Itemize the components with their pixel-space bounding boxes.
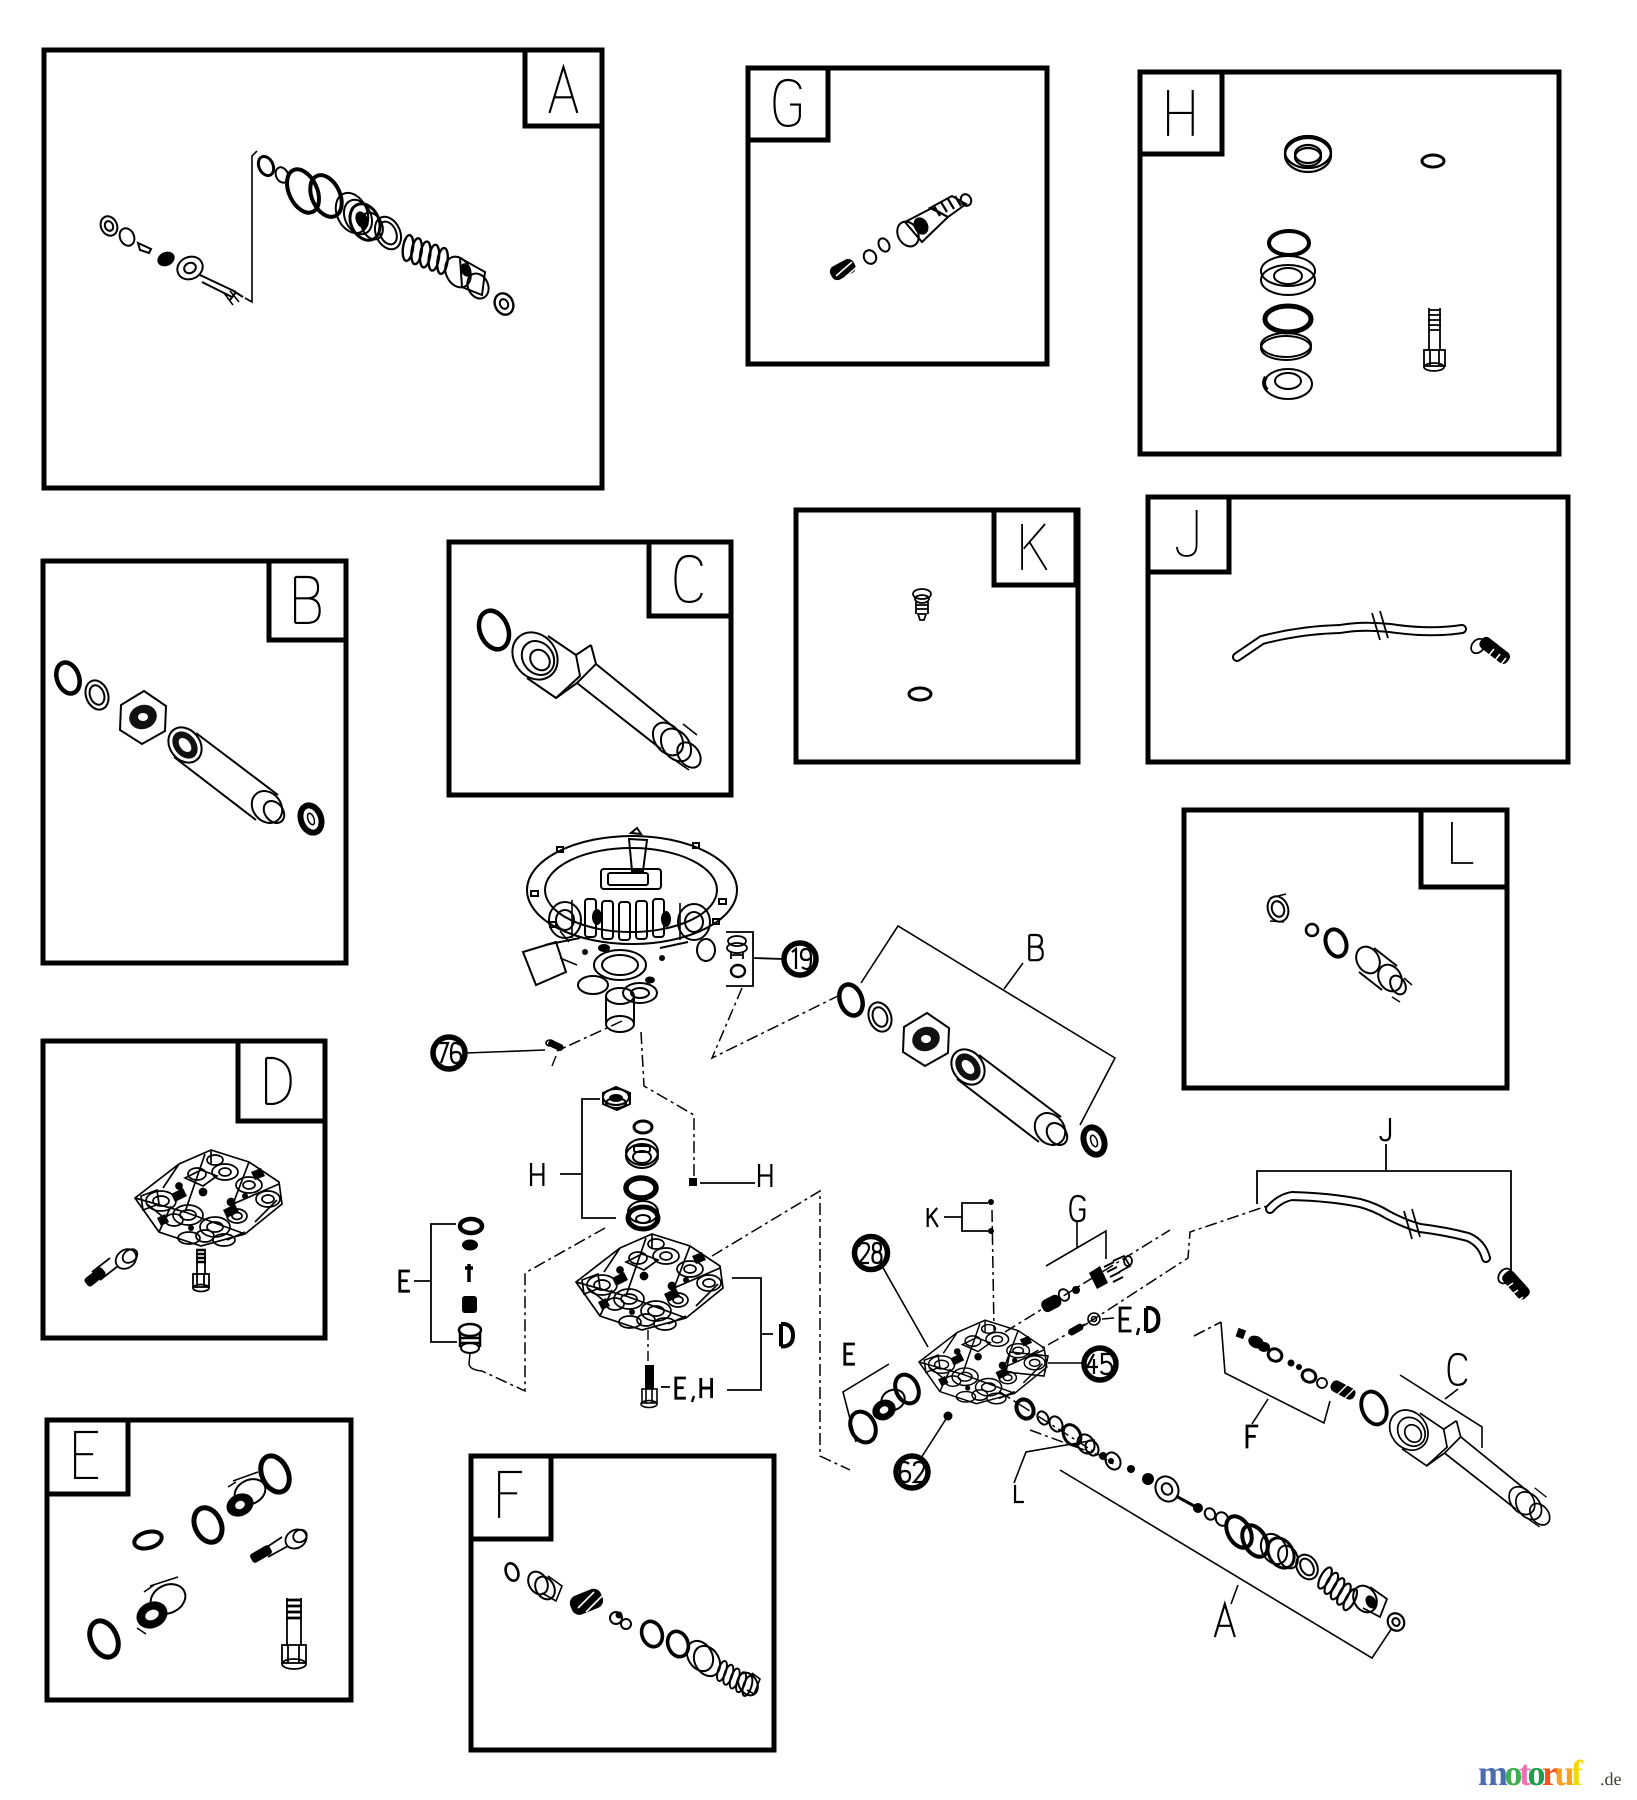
svg-text:motoruf: motoruf bbox=[1478, 1753, 1584, 1793]
svg-text:.de: .de bbox=[1600, 1769, 1622, 1789]
